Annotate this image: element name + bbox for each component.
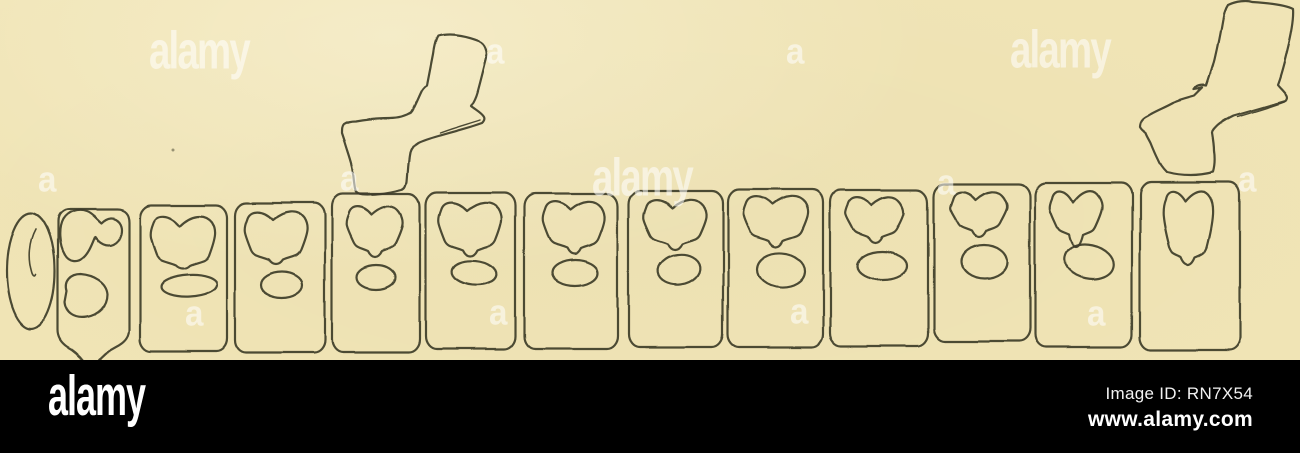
vertebra-segment bbox=[830, 190, 928, 346]
segment-outline bbox=[934, 184, 1030, 341]
rib-outline bbox=[342, 36, 486, 195]
centrum-oval bbox=[160, 274, 217, 299]
rib-flange-line bbox=[1237, 102, 1284, 117]
vertebra-segment-irregular bbox=[58, 209, 129, 360]
image-id-text: Image ID: RN7X54 bbox=[1088, 384, 1253, 404]
segment-outline bbox=[1140, 182, 1240, 350]
segment-outline bbox=[524, 193, 618, 349]
vertebra-segment bbox=[235, 203, 325, 353]
neural-canal-shape bbox=[1050, 191, 1102, 247]
neural-canal-shape bbox=[846, 197, 904, 243]
neural-canal-shape bbox=[245, 212, 307, 265]
paper-speck bbox=[172, 149, 175, 152]
centrum-oval bbox=[552, 260, 598, 286]
centrum-oval bbox=[756, 251, 806, 288]
centrum-oval bbox=[656, 252, 702, 288]
neural-canal-shape bbox=[644, 200, 706, 250]
neural-canal-shape bbox=[744, 197, 808, 247]
drawing-root bbox=[7, 1, 1293, 360]
neural-canal-shape bbox=[543, 201, 605, 254]
neural-canal-shape bbox=[151, 216, 215, 269]
centrum-oval bbox=[451, 259, 497, 287]
vertebra-segment bbox=[629, 191, 723, 347]
vertebrae-line-drawing bbox=[0, 0, 1300, 360]
vertebra-segment bbox=[934, 184, 1030, 341]
alamy-stock-photo-preview: alamyaaalamyaaalamyaaaaaa alamy Image ID… bbox=[0, 0, 1300, 453]
vertebra-segment bbox=[1035, 183, 1132, 347]
alamy-website-url: www.alamy.com bbox=[1088, 408, 1253, 432]
lead-oval-slit bbox=[30, 229, 36, 276]
rib-process bbox=[342, 36, 486, 195]
vertebra-segment bbox=[524, 193, 618, 349]
scanned-illustration: alamyaaalamyaaalamyaaaaaa bbox=[0, 0, 1300, 360]
neural-canal-shape bbox=[1163, 191, 1213, 264]
segment-outline bbox=[235, 203, 325, 353]
alamy-logo: alamy bbox=[48, 368, 145, 424]
vertebra-segment bbox=[728, 190, 823, 347]
rib-process bbox=[1140, 1, 1293, 175]
vertebra-segment bbox=[426, 192, 515, 349]
rib-outline bbox=[1140, 1, 1293, 175]
centrum-oval bbox=[961, 245, 1007, 279]
neural-canal-shape bbox=[347, 207, 403, 257]
segment-outline bbox=[58, 209, 129, 360]
footer-right-block: Image ID: RN7X54 www.alamy.com bbox=[1088, 384, 1253, 432]
centrum-oval bbox=[261, 272, 303, 298]
centrum-shape bbox=[65, 274, 108, 317]
alamy-footer-bar: alamy Image ID: RN7X54 www.alamy.com bbox=[0, 360, 1300, 453]
segment-outline bbox=[332, 194, 420, 352]
centrum-oval bbox=[357, 265, 395, 289]
vertebra-segment bbox=[1140, 182, 1240, 350]
centrum-oval bbox=[857, 252, 907, 280]
neural-canal-shape bbox=[439, 202, 501, 256]
vertebra-segment bbox=[332, 194, 420, 352]
centrum-oval bbox=[1061, 240, 1117, 284]
neural-canal-shape bbox=[60, 210, 122, 261]
neural-canal-shape bbox=[951, 192, 1007, 237]
vertebra-segment bbox=[140, 205, 227, 351]
